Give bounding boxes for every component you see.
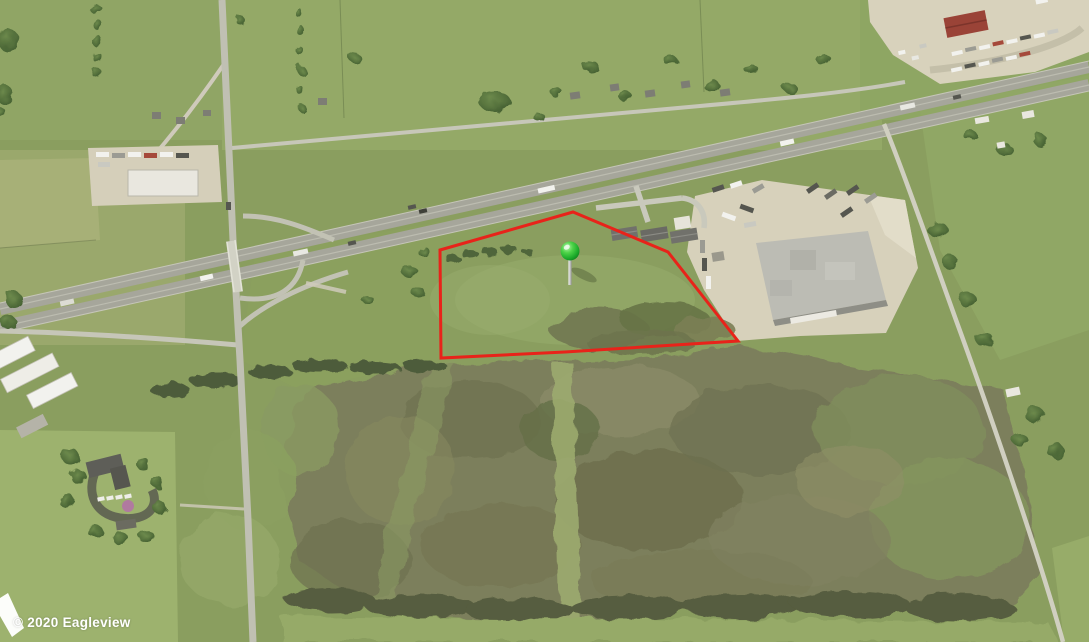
- wooded-area: [180, 346, 1058, 642]
- truck-yard: [88, 145, 222, 206]
- redbud-tree: [122, 500, 134, 512]
- aerial-photo: [0, 0, 1089, 642]
- copyright-attribution: © 2020 Eagleview: [13, 615, 131, 630]
- aerial-map-view[interactable]: © 2020 Eagleview: [0, 0, 1089, 642]
- warehouse-complex: [687, 180, 918, 341]
